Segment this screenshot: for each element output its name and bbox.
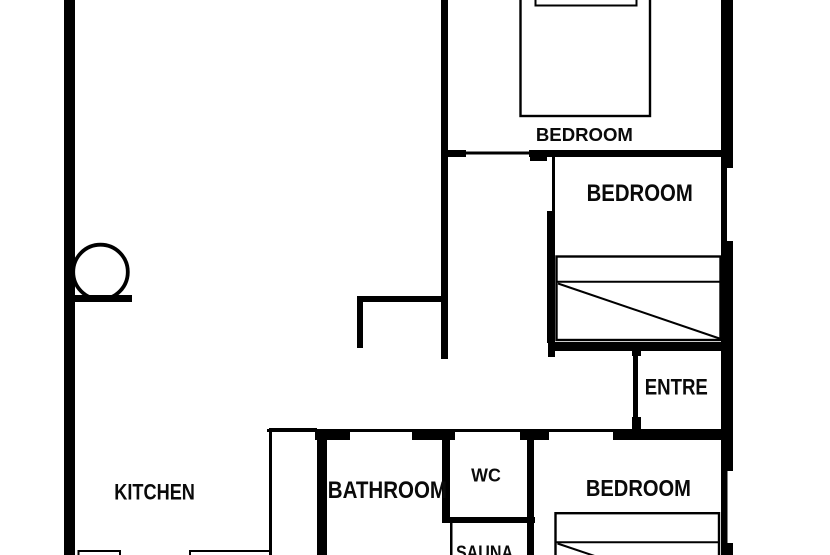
svg-text:WC: WC [471, 465, 501, 485]
svg-text:BEDROOM: BEDROOM [536, 124, 633, 145]
svg-text:BEDROOM: BEDROOM [586, 475, 691, 502]
svg-text:BATHROOM: BATHROOM [328, 476, 447, 503]
svg-text:BEDROOM: BEDROOM [587, 180, 693, 207]
svg-text:KITCHEN: KITCHEN [114, 481, 195, 505]
svg-text:SAUNA: SAUNA [456, 542, 513, 555]
svg-text:ENTRE: ENTRE [645, 376, 708, 400]
